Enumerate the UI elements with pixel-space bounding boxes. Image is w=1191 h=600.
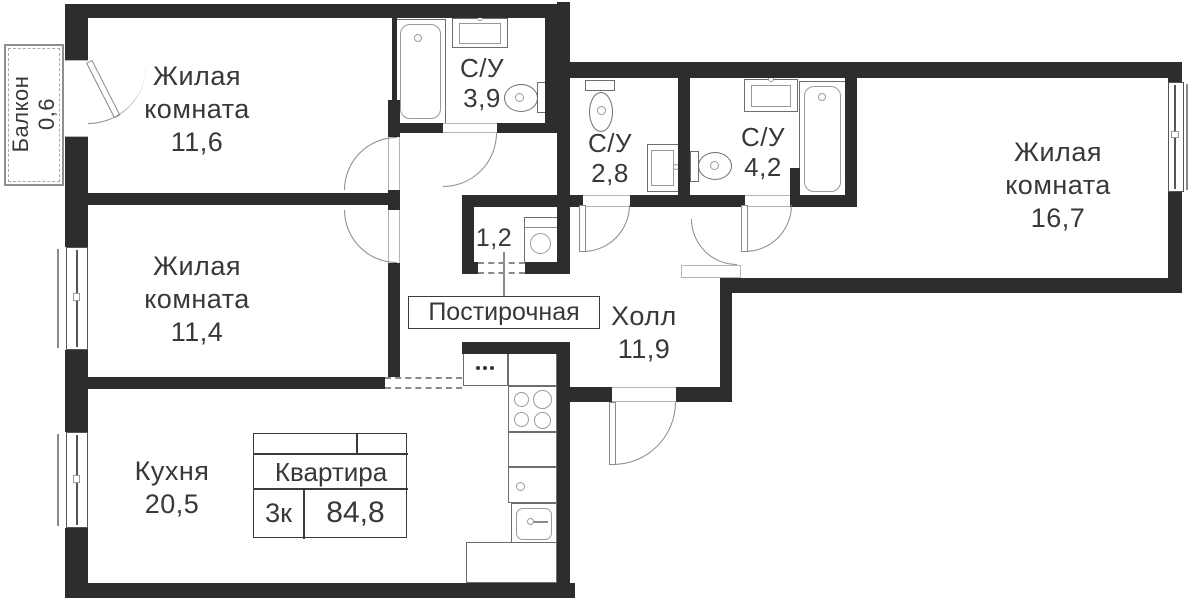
door-opening xyxy=(612,387,676,402)
stove-burner xyxy=(533,390,552,409)
room-label-living1: Жилая комната 11,6 xyxy=(97,60,297,159)
room-label-hall: Холл 11,9 xyxy=(584,300,704,366)
wall xyxy=(720,278,1182,293)
wall xyxy=(392,123,443,133)
stove-burner xyxy=(514,412,529,427)
wall xyxy=(88,377,385,389)
door-arc xyxy=(344,210,397,263)
laundry-callout: Постирочная xyxy=(408,296,600,329)
toilet-tank-icon xyxy=(585,80,615,91)
sink-inner xyxy=(751,85,791,107)
wall xyxy=(392,18,397,123)
room-name-line: Жилая xyxy=(97,60,297,93)
callout-leader-line xyxy=(503,252,505,298)
electric-panel-dot xyxy=(483,366,487,370)
room-name-line: С/У xyxy=(570,128,650,158)
entrance-door-arc xyxy=(613,402,676,465)
wall xyxy=(462,342,570,354)
room-name-line: комната xyxy=(97,93,297,126)
wall xyxy=(545,18,557,123)
room-area: 1,2 xyxy=(454,224,534,252)
door-arc xyxy=(443,133,497,187)
wall xyxy=(790,195,857,207)
toilet-drain-icon xyxy=(710,161,719,170)
stamp-rooms-count: 3к xyxy=(254,498,303,529)
room-label-laundry: 1,2 xyxy=(454,224,534,252)
electric-panel-dot xyxy=(476,366,480,370)
room-area: 4,2 xyxy=(723,152,803,182)
window-sill xyxy=(57,434,59,526)
window-sill xyxy=(1186,84,1188,190)
wall xyxy=(65,528,88,598)
stamp-divider xyxy=(254,453,408,455)
window-handle xyxy=(73,293,80,301)
room-name-line: Кухня xyxy=(112,455,232,488)
wall xyxy=(65,137,88,247)
window-handle xyxy=(1171,131,1179,138)
dishwasher-drop-icon xyxy=(516,482,525,491)
sink-inner xyxy=(651,150,674,186)
room-name-line: комната xyxy=(958,169,1158,202)
room-name-line: Холл xyxy=(584,300,704,333)
room-area: 20,5 xyxy=(112,488,232,521)
stamp-title-text: Квартира xyxy=(275,457,387,487)
kitchen-faucet-knob xyxy=(527,518,534,525)
room-label-kitchen: Кухня 20,5 xyxy=(112,455,232,521)
stamp-divider xyxy=(356,434,358,453)
bathtub-inner xyxy=(804,86,841,192)
wall xyxy=(1168,62,1182,82)
room-area: 3,9 xyxy=(442,83,522,113)
door-opening xyxy=(681,265,741,278)
door-opening xyxy=(443,123,497,133)
kitchen-counter xyxy=(508,432,557,467)
stamp-rooms-count-text: 3к xyxy=(265,498,292,528)
wall xyxy=(65,4,88,60)
floor-plan: Постирочная Жилая комната 11,6 Жилая ком… xyxy=(0,0,1191,600)
room-area: 11,9 xyxy=(584,333,704,366)
kitchen-cabinet xyxy=(508,352,557,386)
room-area: 11,6 xyxy=(97,126,297,159)
door-arc xyxy=(691,219,737,265)
bathtub-drain-icon xyxy=(818,93,826,101)
wall xyxy=(557,62,1182,78)
room-name-line: Жилая xyxy=(97,250,297,283)
wall xyxy=(845,78,857,207)
room-label-living2: Жилая комната 11,4 xyxy=(97,250,297,349)
wall xyxy=(388,263,400,378)
room-label-bathroom3: С/У 4,2 xyxy=(723,122,803,182)
wall xyxy=(88,4,570,18)
wall xyxy=(88,193,390,205)
wall xyxy=(630,195,745,207)
room-name-line: Балкон xyxy=(8,39,34,189)
stove-burner xyxy=(514,392,529,407)
room-label-bathroom1: С/У 3,9 xyxy=(442,53,522,113)
door-arc xyxy=(344,137,397,190)
room-area: 11,4 xyxy=(97,316,297,349)
widened-opening xyxy=(385,377,462,389)
wall xyxy=(462,195,583,207)
wall xyxy=(65,350,88,432)
room-name-line: С/У xyxy=(442,53,522,83)
laundry-callout-label: Постирочная xyxy=(428,298,579,326)
room-area: 16,7 xyxy=(958,202,1158,235)
room-area: 2,8 xyxy=(570,158,650,188)
stamp-total-area: 84,8 xyxy=(303,496,408,530)
room-label-balcony: Балкон 0,6 xyxy=(8,39,60,189)
wall xyxy=(557,342,570,598)
stamp-divider xyxy=(254,488,408,490)
wall xyxy=(497,123,557,133)
toilet-drain-icon xyxy=(597,106,606,115)
stamp-total-area-text: 84,8 xyxy=(326,496,384,529)
kitchen-counter-l xyxy=(466,542,557,583)
bathtub-drain-icon xyxy=(414,34,422,42)
wall xyxy=(557,2,570,272)
stove-burner xyxy=(534,412,551,429)
room-area: 0,6 xyxy=(34,39,60,189)
door-arc xyxy=(583,205,630,252)
door-arc xyxy=(745,205,792,252)
window-handle xyxy=(73,475,80,483)
room-name-line: С/У xyxy=(723,122,803,152)
kitchen-sink-basin xyxy=(516,508,552,540)
room-label-bathroom2: С/У 2,8 xyxy=(570,128,650,188)
wall xyxy=(462,262,478,274)
window-sill xyxy=(57,249,59,348)
widened-opening xyxy=(478,262,525,274)
wall xyxy=(525,262,570,274)
room-name-line: комната xyxy=(97,283,297,316)
door-opening xyxy=(65,60,88,137)
wall xyxy=(678,78,690,207)
room-name-line: Жилая xyxy=(958,136,1158,169)
electric-panel-dot xyxy=(490,366,494,370)
wall xyxy=(557,387,612,402)
wall xyxy=(676,387,732,402)
room-label-living3: Жилая комната 16,7 xyxy=(958,136,1158,235)
wall xyxy=(388,190,400,210)
wall xyxy=(88,583,575,598)
stamp-title: Квартира xyxy=(254,457,408,488)
wall xyxy=(720,293,732,402)
sink-inner xyxy=(459,23,501,44)
apartment-stamp: Квартира 3к 84,8 xyxy=(253,433,407,538)
